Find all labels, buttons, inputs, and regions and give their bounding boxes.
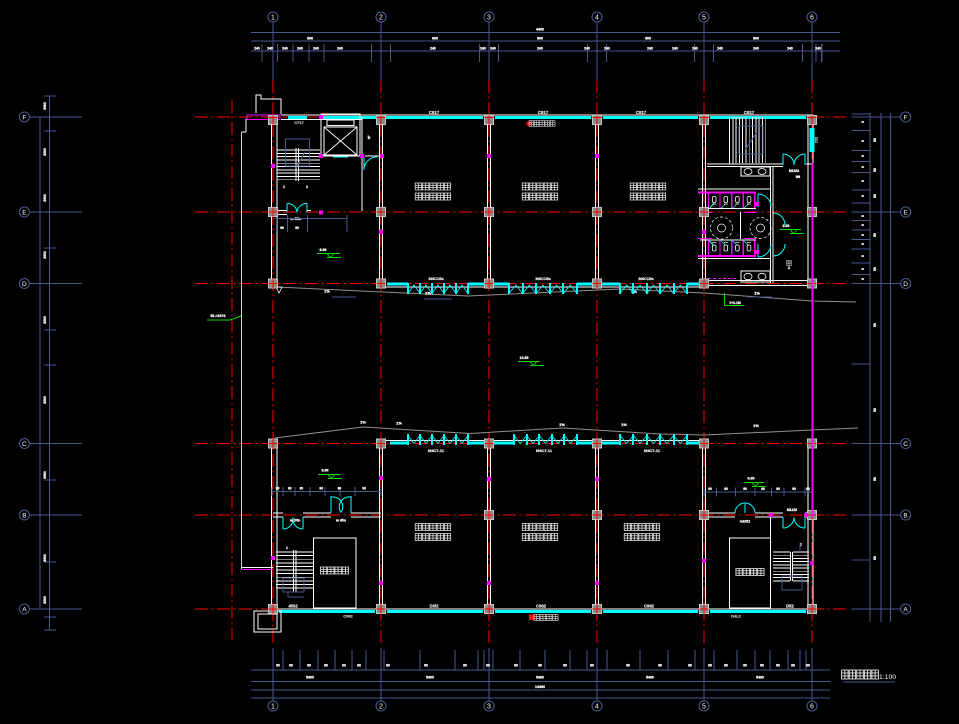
svg-text:9: 9 — [861, 255, 865, 257]
svg-text:9.00: 9.00 — [783, 224, 790, 228]
svg-text:9.00: 9.00 — [320, 248, 327, 252]
svg-text:50: 50 — [873, 556, 877, 560]
svg-text:90: 90 — [761, 487, 765, 491]
svg-text:7: 7 — [800, 543, 802, 547]
svg-text:9: 9 — [861, 140, 865, 142]
svg-text:60: 60 — [357, 664, 361, 668]
svg-text:M4C15a: M4C15a — [638, 276, 654, 281]
svg-text:60: 60 — [424, 664, 428, 668]
svg-text:M1223: M1223 — [787, 508, 797, 512]
svg-text:90: 90 — [338, 487, 342, 491]
svg-text:C917: C917 — [538, 110, 549, 115]
svg-text:90: 90 — [300, 487, 304, 491]
svg-text:3600: 3600 — [43, 251, 47, 259]
svg-text:E: E — [903, 209, 908, 216]
svg-text:90: 90 — [806, 487, 810, 491]
svg-text:9: 9 — [861, 243, 865, 245]
svg-text:240: 240 — [604, 47, 610, 51]
svg-text:600: 600 — [432, 37, 438, 41]
svg-text:1%: 1% — [621, 422, 627, 427]
svg-text:240: 240 — [337, 47, 343, 51]
svg-text:5400: 5400 — [426, 676, 434, 680]
svg-text:9: 9 — [861, 268, 865, 270]
svg-text:90: 90 — [708, 487, 712, 491]
svg-text:D: D — [22, 281, 27, 288]
svg-text:60: 60 — [724, 664, 728, 668]
svg-text:1:100: 1:100 — [879, 674, 896, 681]
svg-text:60: 60 — [760, 664, 764, 668]
svg-text:A: A — [22, 606, 27, 613]
svg-text:3600: 3600 — [43, 148, 47, 156]
svg-text:240: 240 — [430, 47, 436, 51]
svg-text:240: 240 — [647, 47, 653, 51]
svg-text:M4C15a: M4C15a — [535, 276, 551, 281]
svg-text:C: C — [903, 441, 908, 448]
svg-text:240: 240 — [672, 47, 678, 51]
svg-text:9: 9 — [861, 224, 865, 226]
svg-text:9: 9 — [861, 180, 865, 182]
svg-text:5400: 5400 — [756, 676, 764, 680]
svg-text:50: 50 — [873, 323, 877, 327]
svg-text:240: 240 — [313, 47, 319, 51]
svg-text:1%: 1% — [754, 291, 760, 296]
svg-text:600: 600 — [753, 37, 759, 41]
svg-text:240: 240 — [282, 47, 288, 51]
svg-text:60: 60 — [658, 664, 662, 668]
svg-text:5400: 5400 — [536, 676, 544, 680]
svg-text:60: 60 — [289, 664, 293, 668]
svg-text:1%: 1% — [753, 423, 759, 428]
svg-text:60: 60 — [307, 664, 311, 668]
svg-text:D3/2: D3/2 — [430, 604, 440, 609]
svg-text:10.50: 10.50 — [520, 356, 529, 360]
svg-text:m D5n: m D5n — [290, 519, 300, 523]
svg-text:14400: 14400 — [535, 685, 545, 689]
svg-text:9: 9 — [861, 121, 865, 123]
svg-text:240: 240 — [717, 47, 723, 51]
svg-text:90: 90 — [280, 226, 284, 230]
svg-text:A: A — [903, 606, 908, 613]
svg-text:240: 240 — [267, 47, 273, 51]
svg-text:90: 90 — [743, 487, 747, 491]
svg-text:m1021: m1021 — [740, 520, 751, 524]
svg-text:60: 60 — [791, 664, 795, 668]
svg-text:6M: 6M — [796, 175, 801, 179]
svg-text:3600: 3600 — [43, 396, 47, 404]
svg-text:60: 60 — [806, 664, 810, 668]
svg-text:50: 50 — [873, 233, 877, 237]
svg-text:6: 6 — [810, 15, 814, 22]
svg-text:90: 90 — [362, 487, 366, 491]
svg-text:50: 50 — [873, 408, 877, 412]
svg-text:F: F — [904, 114, 908, 121]
svg-text:240: 240 — [297, 47, 303, 51]
svg-text:1%: 1% — [324, 289, 330, 294]
svg-text:1: 1 — [271, 15, 275, 22]
svg-text:3600: 3600 — [43, 102, 47, 110]
svg-text:240: 240 — [584, 47, 590, 51]
svg-text:4400: 4400 — [536, 28, 544, 32]
svg-text:C917: C917 — [744, 110, 755, 115]
svg-text:240: 240 — [815, 47, 821, 51]
svg-text:b: b — [368, 135, 371, 140]
svg-text:4: 4 — [595, 704, 599, 711]
svg-text:B: B — [22, 512, 26, 519]
svg-text:60: 60 — [276, 664, 280, 668]
svg-text:240: 240 — [787, 47, 793, 51]
svg-text:M1523: M1523 — [789, 169, 799, 173]
svg-text:50: 50 — [873, 168, 877, 172]
svg-text:3: 3 — [487, 704, 491, 711]
svg-text:1%: 1% — [559, 422, 565, 427]
svg-text:90: 90 — [776, 487, 780, 491]
svg-text:1+2.1M: 1+2.1M — [729, 301, 741, 305]
svg-text:60: 60 — [538, 664, 542, 668]
svg-text:60: 60 — [463, 664, 467, 668]
svg-text:M4C7.11: M4C7.11 — [428, 448, 445, 453]
svg-text:5400: 5400 — [306, 676, 314, 680]
svg-text:240: 240 — [480, 47, 486, 51]
svg-text:60: 60 — [324, 664, 328, 668]
svg-text:90: 90 — [319, 487, 323, 491]
svg-text:9: 9 — [861, 195, 865, 197]
svg-text:5400: 5400 — [646, 676, 654, 680]
svg-text:60: 60 — [386, 664, 390, 668]
svg-text:3600: 3600 — [43, 596, 47, 604]
svg-text:C917: C917 — [429, 110, 440, 115]
svg-text:E: E — [22, 209, 27, 216]
svg-text:M4C15a: M4C15a — [428, 276, 444, 281]
svg-text:M4C7.11: M4C7.11 — [644, 448, 661, 453]
svg-text:3: 3 — [487, 15, 491, 22]
svg-text:60: 60 — [563, 664, 567, 668]
svg-text:2: 2 — [379, 704, 383, 711]
svg-text:9: 9 — [861, 234, 865, 236]
svg-text:1%: 1% — [360, 420, 366, 425]
svg-text:600: 600 — [537, 37, 543, 41]
svg-text:60: 60 — [743, 664, 747, 668]
svg-text:C52: C52 — [815, 137, 819, 143]
svg-text:9.00: 9.00 — [748, 477, 755, 481]
svg-text:9: 9 — [861, 155, 865, 157]
svg-text:6: 6 — [810, 704, 814, 711]
svg-text:2: 2 — [379, 15, 383, 22]
svg-text:60: 60 — [688, 664, 692, 668]
svg-text:240: 240 — [490, 47, 496, 51]
svg-text:B: B — [903, 512, 907, 519]
svg-text:60: 60 — [708, 664, 712, 668]
svg-text:5: 5 — [702, 15, 706, 22]
svg-text:240: 240 — [537, 47, 543, 51]
svg-text:240: 240 — [753, 47, 759, 51]
svg-text:240: 240 — [692, 47, 698, 51]
svg-text:90: 90 — [792, 487, 796, 491]
svg-text:9: 9 — [861, 166, 865, 168]
svg-text:D: D — [903, 281, 908, 288]
svg-text:600: 600 — [645, 37, 651, 41]
svg-text:9: 9 — [861, 278, 865, 280]
svg-text:M4C7.11: M4C7.11 — [536, 448, 553, 453]
svg-text:C717: C717 — [294, 120, 304, 125]
svg-text:50: 50 — [873, 267, 877, 271]
svg-text:90: 90 — [276, 487, 280, 491]
svg-text:60: 60 — [486, 664, 490, 668]
svg-text:240: 240 — [254, 47, 260, 51]
svg-text:60: 60 — [626, 664, 630, 668]
svg-text:60: 60 — [590, 664, 594, 668]
svg-text:50: 50 — [873, 194, 877, 198]
svg-text:60: 60 — [776, 664, 780, 668]
svg-text:D4L2: D4L2 — [731, 614, 742, 619]
svg-text:600: 600 — [307, 37, 313, 41]
svg-text:C: C — [22, 441, 27, 448]
svg-text:90: 90 — [288, 487, 292, 491]
svg-text:1: 1 — [271, 704, 275, 711]
svg-text:D52: D52 — [786, 604, 794, 609]
svg-text:m 45n: m 45n — [336, 519, 346, 523]
svg-text:C917: C917 — [636, 110, 647, 115]
svg-text:3600: 3600 — [43, 194, 47, 202]
svg-text:50: 50 — [873, 477, 877, 481]
svg-text:1%: 1% — [396, 421, 402, 426]
svg-text:3600: 3600 — [43, 554, 47, 562]
svg-text:9: 9 — [861, 215, 865, 217]
svg-text:60: 60 — [514, 664, 518, 668]
svg-text:C982: C982 — [343, 614, 353, 619]
svg-text:9.00: 9.00 — [322, 469, 329, 473]
svg-text:50: 50 — [873, 138, 877, 142]
svg-text:4: 4 — [595, 15, 599, 22]
svg-text:C962: C962 — [536, 604, 547, 609]
svg-text:BL=1974: BL=1974 — [211, 314, 226, 318]
svg-text:5: 5 — [702, 704, 706, 711]
svg-text:90: 90 — [295, 226, 299, 230]
svg-text:3600: 3600 — [43, 471, 47, 479]
svg-text:60: 60 — [342, 664, 346, 668]
svg-text:F: F — [22, 114, 26, 121]
svg-text:90: 90 — [724, 487, 728, 491]
svg-text:C962: C962 — [644, 604, 655, 609]
svg-text:3600: 3600 — [43, 316, 47, 324]
svg-text:4502: 4502 — [288, 604, 298, 609]
